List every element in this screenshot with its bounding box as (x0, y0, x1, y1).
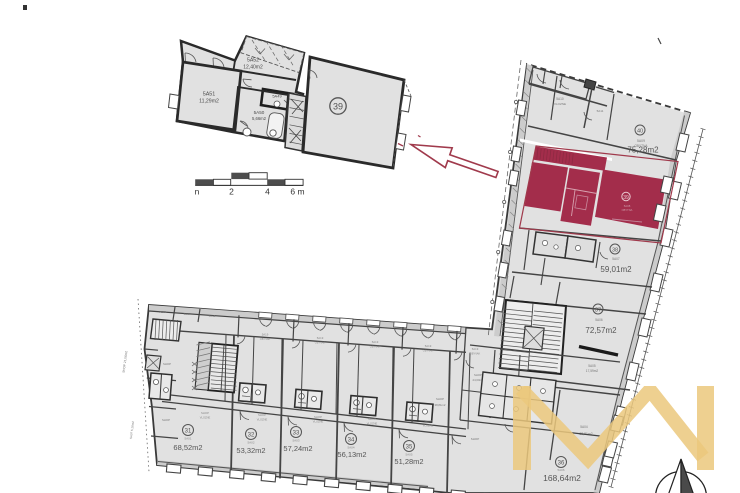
svg-text:5A02: 5A02 (247, 441, 254, 445)
svg-text:4: 4 (265, 187, 270, 197)
svg-text:12,40m2: 12,40m2 (243, 65, 263, 71)
svg-text:5A52: 5A52 (247, 58, 259, 64)
svg-text:5A10: 5A10 (556, 97, 564, 101)
svg-text:OBYVAK: OBYVAK (470, 352, 481, 356)
svg-text:AD7A: AD7A (159, 310, 166, 314)
svg-text:5A50: 5A50 (254, 110, 265, 115)
svg-text:VLOZNE: VLOZNE (367, 422, 378, 426)
svg-text:5A08: 5A08 (624, 204, 631, 208)
svg-text:SHOP: SHOP (471, 437, 480, 441)
svg-text:5A01: 5A01 (184, 437, 191, 441)
svg-text:VLOZNE: VLOZNE (313, 420, 324, 424)
svg-text:5A09: 5A09 (637, 139, 645, 143)
svg-text:VLOZNE: VLOZNE (554, 102, 566, 106)
svg-text:37: 37 (595, 308, 601, 314)
svg-text:OBYVAK: OBYVAK (315, 341, 326, 345)
svg-text:SHOP: SHOP (314, 415, 322, 419)
svg-text:5A06: 5A06 (595, 318, 603, 322)
svg-text:SHOP: SHOP (258, 413, 266, 417)
svg-text:59,01m2: 59,01m2 (600, 265, 632, 274)
svg-text:33: 33 (293, 431, 300, 437)
svg-text:5,66m2: 5,66m2 (252, 116, 267, 121)
svg-text:5A04: 5A04 (347, 446, 354, 450)
svg-text:38: 38 (612, 248, 618, 254)
svg-text:SHOP: SHOP (424, 419, 432, 423)
svg-text:5A19: 5A19 (262, 332, 269, 336)
svg-text:68,52m2: 68,52m2 (173, 443, 202, 452)
svg-text:VLOZNE: VLOZNE (423, 424, 434, 428)
svg-text:31: 31 (185, 429, 192, 435)
svg-text:SHOP: SHOP (163, 362, 171, 366)
svg-text:5A03: 5A03 (292, 439, 299, 443)
svg-text:5A05: 5A05 (405, 453, 412, 457)
svg-text:34: 34 (348, 438, 355, 444)
svg-text:17,59m2: 17,59m2 (586, 369, 599, 373)
svg-text:5D18: 5D18 (209, 314, 216, 318)
svg-text:32: 32 (248, 433, 255, 439)
svg-text:n: n (195, 187, 200, 197)
svg-text:5D17: 5D17 (184, 312, 191, 316)
svg-text:5A51: 5A51 (203, 92, 216, 98)
svg-text:36: 36 (558, 461, 565, 467)
svg-text:39: 39 (623, 195, 629, 201)
svg-text:51,28m2: 51,28m2 (394, 457, 423, 466)
svg-text:OBYTNA: OBYTNA (622, 208, 633, 212)
svg-text:OBYVAK: OBYVAK (370, 345, 381, 349)
svg-text:VLOZNE: VLOZNE (257, 418, 268, 422)
svg-text:11,29m2: 11,29m2 (199, 99, 219, 105)
svg-text:VLOZNE: VLOZNE (200, 416, 211, 420)
svg-text:SHOP: SHOP (436, 397, 444, 401)
svg-text:38,81m2: 38,81m2 (435, 403, 446, 407)
svg-text:5A05: 5A05 (588, 364, 596, 368)
svg-text:39: 39 (333, 102, 343, 112)
svg-text:53,32m2: 53,32m2 (236, 446, 265, 455)
svg-text:5A06: 5A06 (557, 468, 564, 472)
svg-text:56,13m2: 56,13m2 (337, 450, 366, 459)
svg-text:OBYVAK: OBYVAK (260, 337, 271, 341)
svg-text:5A19: 5A19 (372, 340, 379, 344)
svg-text:5A19: 5A19 (317, 336, 324, 340)
svg-text:SHOP: SHOP (474, 373, 482, 377)
svg-text:2: 2 (229, 187, 234, 197)
svg-text:5A19: 5A19 (425, 344, 432, 348)
svg-text:SHOP: SHOP (162, 418, 170, 422)
svg-text:75,28m2: 75,28m2 (627, 146, 659, 155)
svg-text:40: 40 (637, 129, 643, 135)
svg-text:35: 35 (406, 445, 413, 451)
svg-text:5A19: 5A19 (472, 347, 479, 351)
svg-text:168,64m2: 168,64m2 (543, 473, 581, 483)
svg-text:72,57m2: 72,57m2 (585, 326, 617, 335)
svg-text:6 m: 6 m (290, 187, 304, 197)
svg-text:5A07: 5A07 (612, 257, 620, 261)
svg-text:5A11: 5A11 (597, 109, 604, 113)
svg-text:5A04: 5A04 (580, 425, 588, 429)
svg-text:SHOP: SHOP (201, 411, 209, 415)
svg-text:OBYVAK: OBYVAK (423, 348, 434, 352)
svg-text:57,24m2: 57,24m2 (283, 444, 312, 453)
svg-text:SHOP: SHOP (368, 417, 376, 421)
